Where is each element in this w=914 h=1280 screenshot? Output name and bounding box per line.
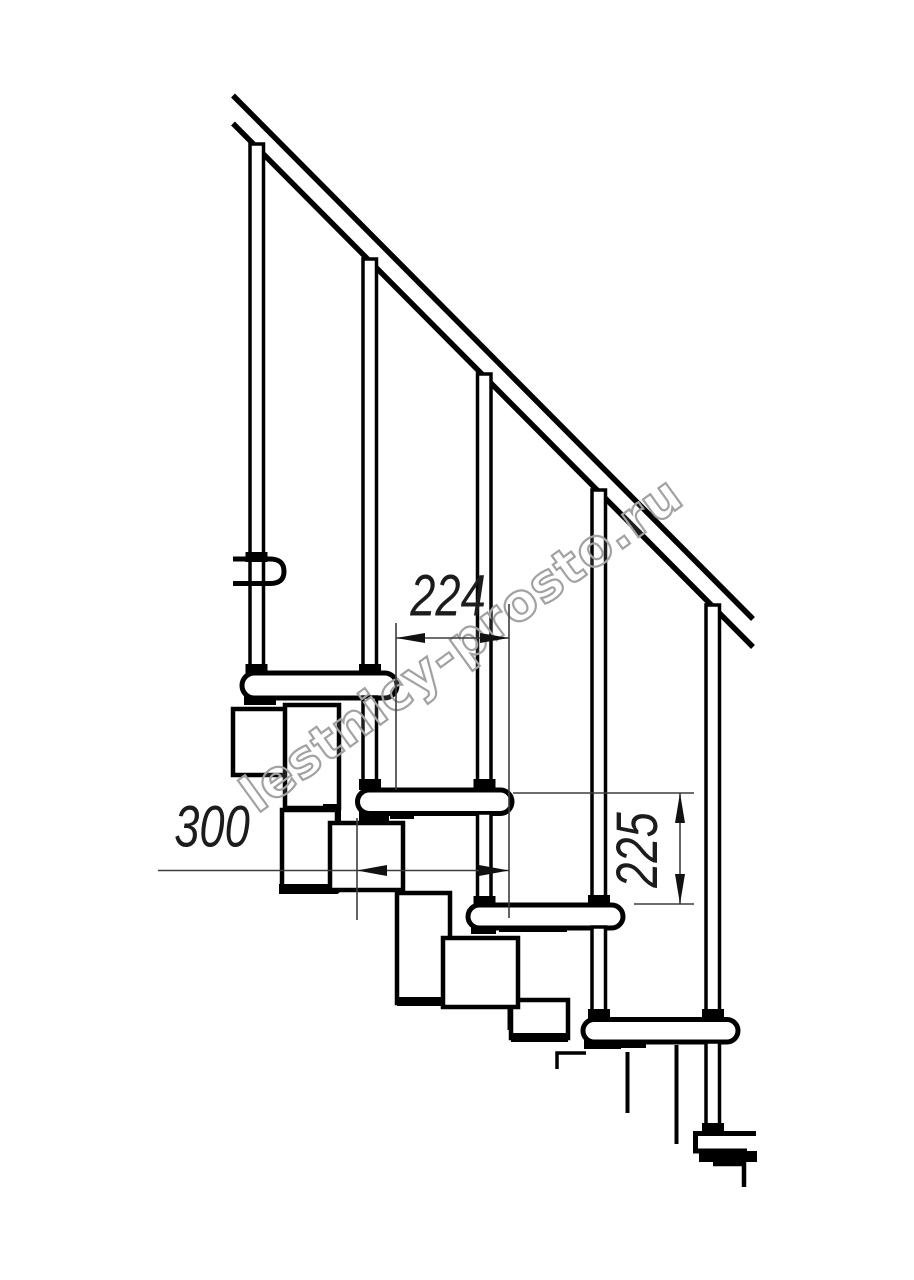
arrowhead-up — [675, 793, 685, 823]
arrowhead-right — [480, 633, 509, 643]
dimension-label-run: 224 — [410, 568, 485, 626]
dimension-label-depth: 300 — [174, 799, 249, 857]
dimension-label-rise: 225 — [609, 812, 667, 887]
arrowhead-left — [396, 633, 425, 643]
dimension-annotations — [0, 0, 914, 1280]
arrowhead-right — [479, 865, 509, 876]
arrowhead-down — [675, 874, 685, 904]
arrowhead-left — [357, 865, 387, 876]
technical-drawing-staircase: lestnicy-prosto.ru — [0, 0, 914, 1280]
